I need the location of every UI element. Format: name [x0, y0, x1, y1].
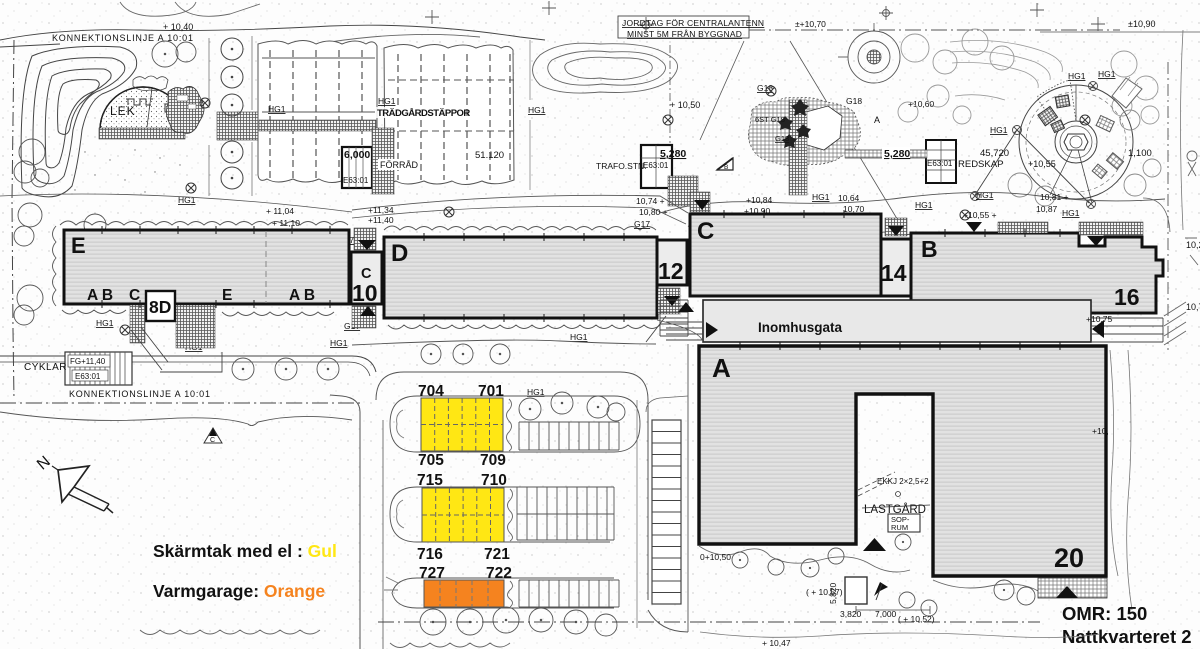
svg-text:+ 10,40: + 10,40 — [163, 22, 193, 32]
svg-text:E: E — [222, 287, 232, 304]
svg-text:E63:01: E63:01 — [643, 161, 669, 170]
svg-text:5,280: 5,280 — [884, 148, 910, 160]
svg-text:+ 10,50: + 10,50 — [670, 100, 700, 110]
svg-text:A: A — [874, 115, 880, 125]
svg-text:E63:01: E63:01 — [927, 159, 953, 168]
svg-text:721: 721 — [484, 546, 510, 563]
svg-text:10,81 +: 10,81 + — [1040, 192, 1069, 202]
svg-text:A B: A B — [289, 287, 315, 304]
svg-text:Skärmtak med el : Gul: Skärmtak med el : Gul — [153, 541, 337, 561]
svg-text:10,74 +: 10,74 + — [636, 196, 665, 206]
svg-text:G18: G18 — [846, 96, 862, 106]
svg-text:EKKJ 2×2,5+2: EKKJ 2×2,5+2 — [877, 477, 929, 486]
svg-text:±10,90: ±10,90 — [1128, 19, 1155, 29]
svg-text:Varmgarage: Orange: Varmgarage: Orange — [153, 581, 325, 601]
svg-text:MINST 5M FRÅN BYGGNAD: MINST 5M FRÅN BYGGNAD — [627, 29, 742, 39]
svg-text:51.120: 51.120 — [475, 150, 504, 161]
svg-text:B: B — [921, 236, 938, 262]
svg-text:716: 716 — [417, 546, 443, 563]
svg-text:727: 727 — [419, 565, 445, 582]
svg-text:HG1: HG1 — [268, 104, 286, 114]
svg-text:TRAFO.STN.: TRAFO.STN. — [596, 161, 647, 171]
svg-text:B: B — [724, 164, 728, 171]
svg-text:C: C — [210, 437, 215, 444]
svg-text:+ 11,04: + 11,04 — [266, 206, 294, 216]
svg-text:RUM: RUM — [891, 523, 908, 532]
svg-text:+10,55: +10,55 — [1028, 159, 1056, 169]
svg-text:LEK: LEK — [110, 104, 136, 118]
svg-text:HG1: HG1 — [96, 318, 114, 328]
svg-text:704: 704 — [418, 383, 444, 400]
svg-text:HG1: HG1 — [915, 200, 933, 210]
svg-text:D: D — [391, 240, 408, 267]
svg-text:+ 11,10: + 11,10 — [272, 218, 300, 228]
svg-text:+10,84: +10,84 — [746, 195, 773, 205]
svg-text:1,100: 1,100 — [1128, 148, 1152, 159]
svg-text:HG1: HG1 — [378, 96, 396, 106]
svg-text:12: 12 — [658, 258, 684, 284]
svg-text:7,000: 7,000 — [875, 609, 897, 619]
svg-text:G18: G18 — [775, 134, 789, 143]
svg-text:8D: 8D — [149, 297, 171, 317]
svg-text:HG1: HG1 — [570, 332, 588, 342]
svg-text:10,7: 10,7 — [1186, 302, 1200, 312]
svg-text:+10,: +10, — [1092, 426, 1109, 436]
svg-text:715: 715 — [417, 472, 443, 489]
svg-text:HG1: HG1 — [528, 105, 546, 115]
svg-text:709: 709 — [480, 452, 506, 469]
svg-text:E: E — [71, 233, 86, 258]
svg-text:HG1: HG1 — [330, 338, 348, 348]
svg-text:HG1: HG1 — [527, 387, 545, 397]
svg-text:10: 10 — [352, 280, 378, 306]
svg-text:HG1: HG1 — [1098, 69, 1116, 79]
svg-text:A: A — [712, 353, 731, 383]
svg-text:10,2: 10,2 — [1186, 240, 1200, 250]
svg-text:CYKLAR: CYKLAR — [24, 362, 67, 373]
svg-text:±+10,70: ±+10,70 — [795, 19, 826, 29]
svg-text:Inomhusgata: Inomhusgata — [758, 320, 842, 335]
svg-text:HG1: HG1 — [812, 192, 830, 202]
svg-text:705: 705 — [418, 452, 444, 469]
svg-text:722: 722 — [486, 565, 512, 582]
svg-text:+10,75: +10,75 — [1086, 314, 1113, 324]
svg-text:710: 710 — [481, 472, 507, 489]
svg-text:FÖRRÅD: FÖRRÅD — [380, 160, 419, 170]
svg-text:0+10,50: 0+10,50 — [700, 552, 731, 562]
svg-text:FG+11,40: FG+11,40 — [70, 357, 106, 366]
svg-text:+11,40: +11,40 — [368, 215, 394, 225]
svg-text:3,820: 3,820 — [840, 609, 862, 619]
svg-text:( + 10,52): ( + 10,52) — [898, 614, 935, 624]
svg-text:C: C — [697, 218, 714, 245]
svg-text:10,64: 10,64 — [838, 193, 860, 203]
svg-text:OMR: 150: OMR: 150 — [1062, 603, 1147, 624]
svg-text:+11,34: +11,34 — [368, 205, 394, 215]
svg-text:14: 14 — [881, 260, 907, 286]
svg-text:+ 10,47: + 10,47 — [762, 638, 791, 648]
svg-text:10,80 +: 10,80 + — [639, 207, 668, 217]
svg-text:KONNEKTIONSLINJE A 10:01: KONNEKTIONSLINJE A 10:01 — [52, 33, 194, 43]
svg-text:KONNEKTIONSLINJE A 10:01: KONNEKTIONSLINJE A 10:01 — [69, 389, 211, 399]
svg-text:A B: A B — [87, 287, 113, 304]
svg-text:10,87: 10,87 — [1036, 204, 1058, 214]
svg-text:16: 16 — [1114, 284, 1140, 310]
svg-text:E63:01: E63:01 — [343, 176, 369, 185]
svg-text:HG1: HG1 — [990, 125, 1008, 135]
svg-text:6,000: 6,000 — [344, 149, 370, 161]
svg-text:JORDTAG FÖR CENTRALANTENN: JORDTAG FÖR CENTRALANTENN — [622, 18, 764, 28]
svg-text:HG1: HG1 — [976, 190, 994, 200]
svg-text:G17: G17 — [634, 219, 650, 229]
svg-text:C: C — [129, 287, 140, 304]
svg-text:45,720: 45,720 — [980, 148, 1009, 159]
svg-text:5,820: 5,820 — [828, 582, 838, 604]
svg-text:20: 20 — [1054, 543, 1084, 573]
svg-text:HG1: HG1 — [1068, 71, 1086, 81]
svg-text:6ST G18: 6ST G18 — [755, 115, 785, 124]
svg-text:E63:01: E63:01 — [75, 372, 101, 381]
svg-text:5,280: 5,280 — [660, 148, 686, 160]
svg-text:TRÄDGÅRDSTÄPPOR: TRÄDGÅRDSTÄPPOR — [377, 108, 470, 119]
svg-text:701: 701 — [478, 383, 504, 400]
svg-text:HG1: HG1 — [1062, 208, 1080, 218]
svg-text:REDSKAP: REDSKAP — [958, 159, 1003, 170]
